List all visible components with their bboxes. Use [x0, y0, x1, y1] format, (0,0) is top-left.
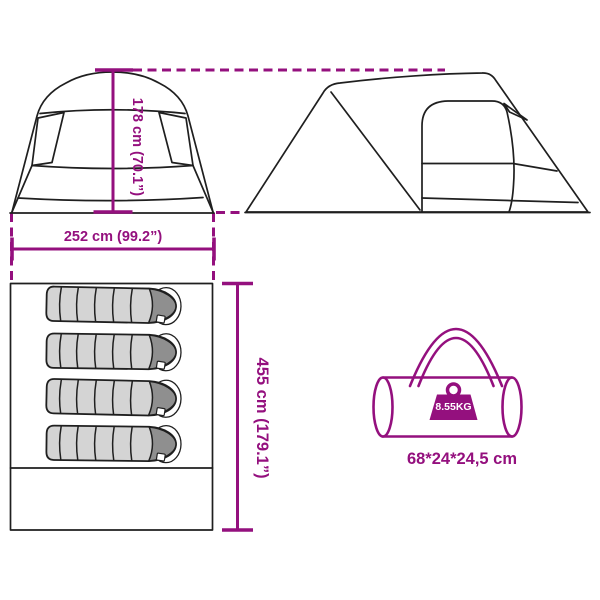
weight-icon-loop — [448, 384, 460, 396]
side-outline — [246, 73, 588, 212]
side-lower-seam — [422, 198, 578, 203]
tent-side-view — [245, 73, 590, 213]
sleeping-bag-3 — [46, 378, 181, 418]
sleeping-bag-1 — [46, 285, 181, 325]
side-upper-seam — [422, 164, 557, 172]
front-left-window — [32, 113, 64, 166]
length-dimension-label: 455 cm (179.1”) — [253, 318, 271, 518]
front-right-window — [159, 113, 193, 166]
carry-bag-size-label: 68*24*24,5 cm — [382, 450, 542, 468]
side-door-arch — [422, 101, 514, 212]
sleeping-bag-4 — [46, 424, 181, 463]
front-lower-seam — [18, 198, 203, 201]
dashed-guide-lines — [12, 70, 446, 283]
height-dimension-label: 178 cm (70.1”) — [128, 72, 144, 222]
sleeping-bag-2 — [46, 332, 181, 371]
floor-plan — [11, 284, 213, 531]
width-dimension-label: 252 cm (99.2”) — [33, 230, 193, 246]
carry-bag-left-end — [374, 378, 393, 437]
tent-dimensions-diagram: 178 cm (70.1”) 252 cm (99.2”) 455 cm (17… — [0, 0, 600, 600]
carry-bag-weight-label: 8.55KG — [423, 402, 484, 414]
side-vestibule-edge — [331, 92, 420, 210]
diagram-artwork — [0, 0, 600, 600]
carry-bag-right-end — [503, 378, 522, 437]
carry-bag — [374, 329, 522, 437]
